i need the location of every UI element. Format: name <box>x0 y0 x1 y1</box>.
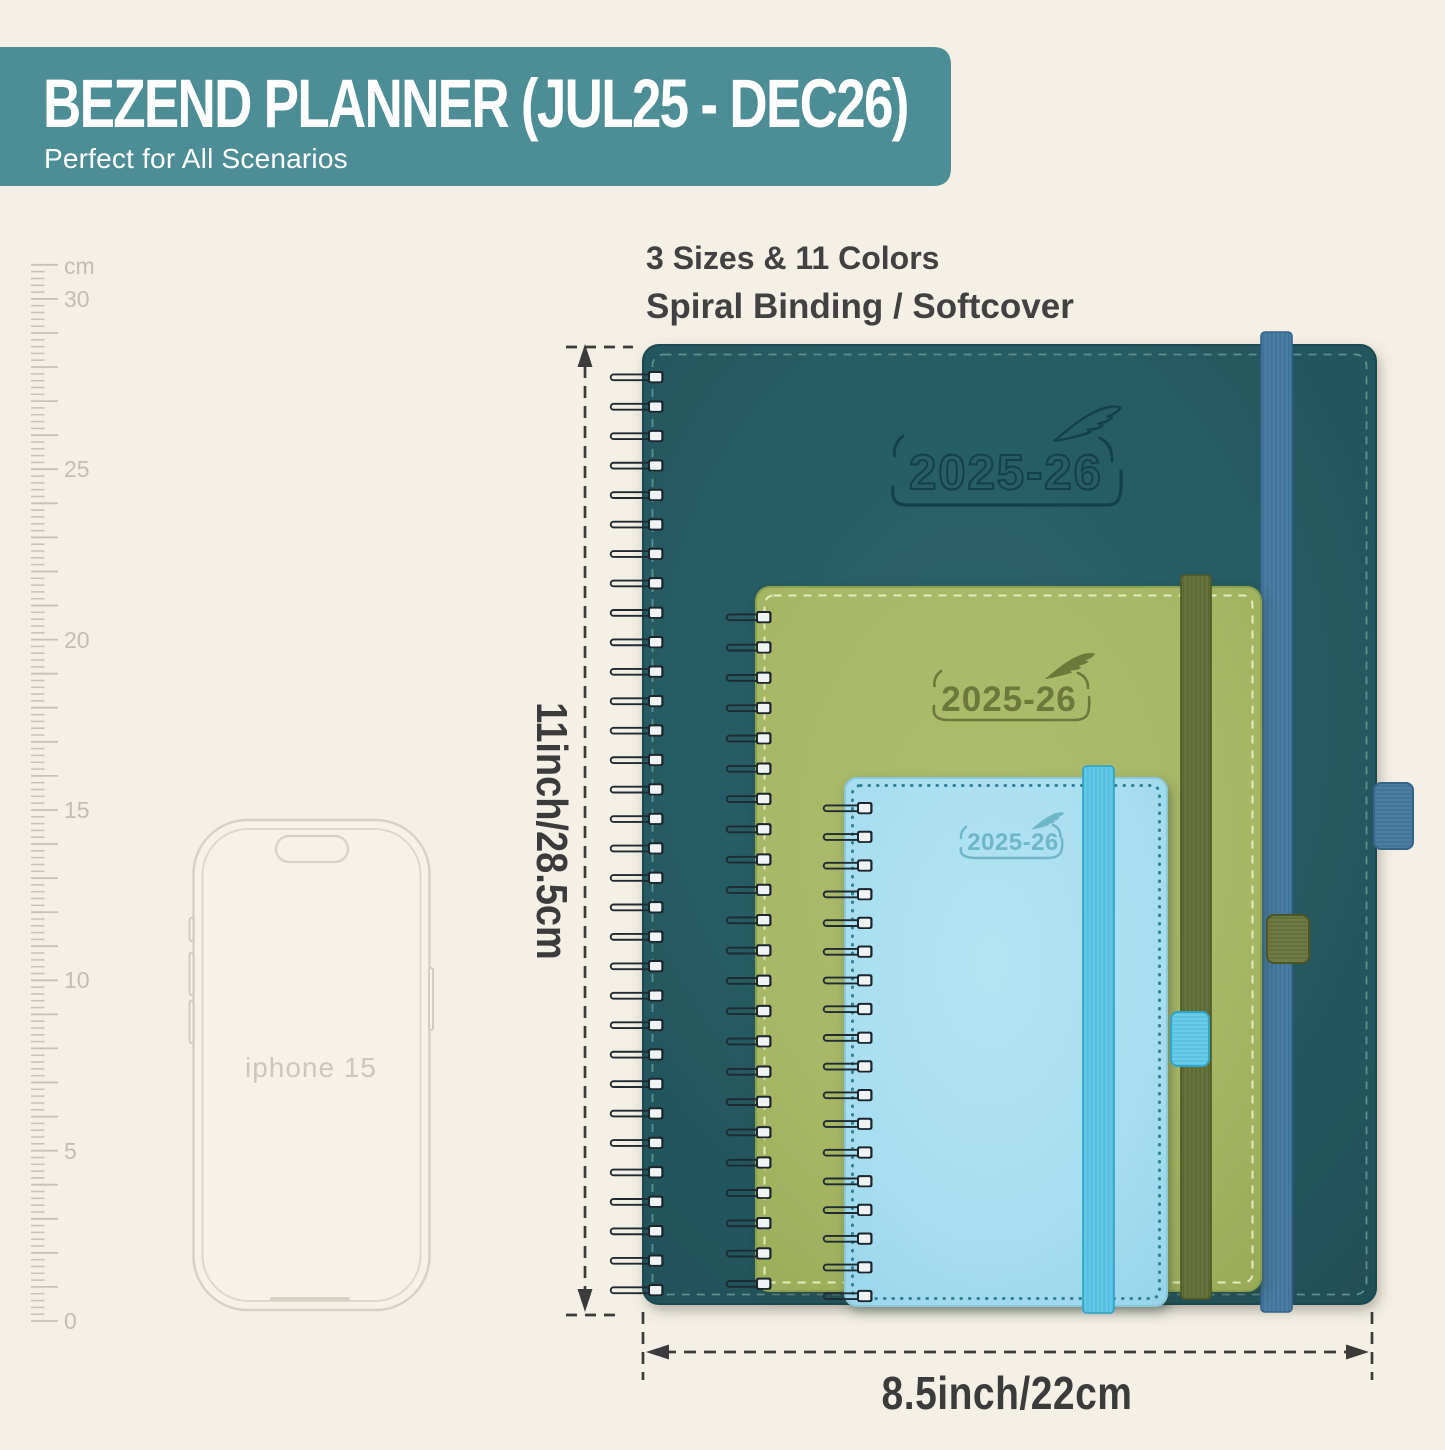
svg-text:iphone 15: iphone 15 <box>245 1052 377 1083</box>
svg-text:0: 0 <box>64 1308 77 1334</box>
svg-text:5: 5 <box>64 1138 77 1164</box>
svg-text:3 Sizes & 11 Colors: 3 Sizes & 11 Colors <box>646 240 939 276</box>
svg-text:30: 30 <box>64 286 90 312</box>
svg-text:cm: cm <box>64 253 95 279</box>
svg-text:2025-26: 2025-26 <box>941 680 1076 719</box>
svg-text:2025-26: 2025-26 <box>967 829 1059 856</box>
svg-text:10: 10 <box>64 967 90 993</box>
svg-text:Spiral Binding / Softcover: Spiral Binding / Softcover <box>646 287 1074 326</box>
svg-text:Perfect for All Scenarios: Perfect for All Scenarios <box>44 143 348 174</box>
svg-text:15: 15 <box>64 797 90 823</box>
svg-text:11inch/28.5cm: 11inch/28.5cm <box>527 702 576 960</box>
svg-text:20: 20 <box>64 627 90 653</box>
svg-text:BEZEND PLANNER (JUL25 - DEC26): BEZEND PLANNER (JUL25 - DEC26) <box>43 65 908 142</box>
svg-text:8.5inch/22cm: 8.5inch/22cm <box>882 1368 1133 1420</box>
svg-text:2025-26: 2025-26 <box>909 446 1103 500</box>
svg-text:25: 25 <box>64 456 90 482</box>
